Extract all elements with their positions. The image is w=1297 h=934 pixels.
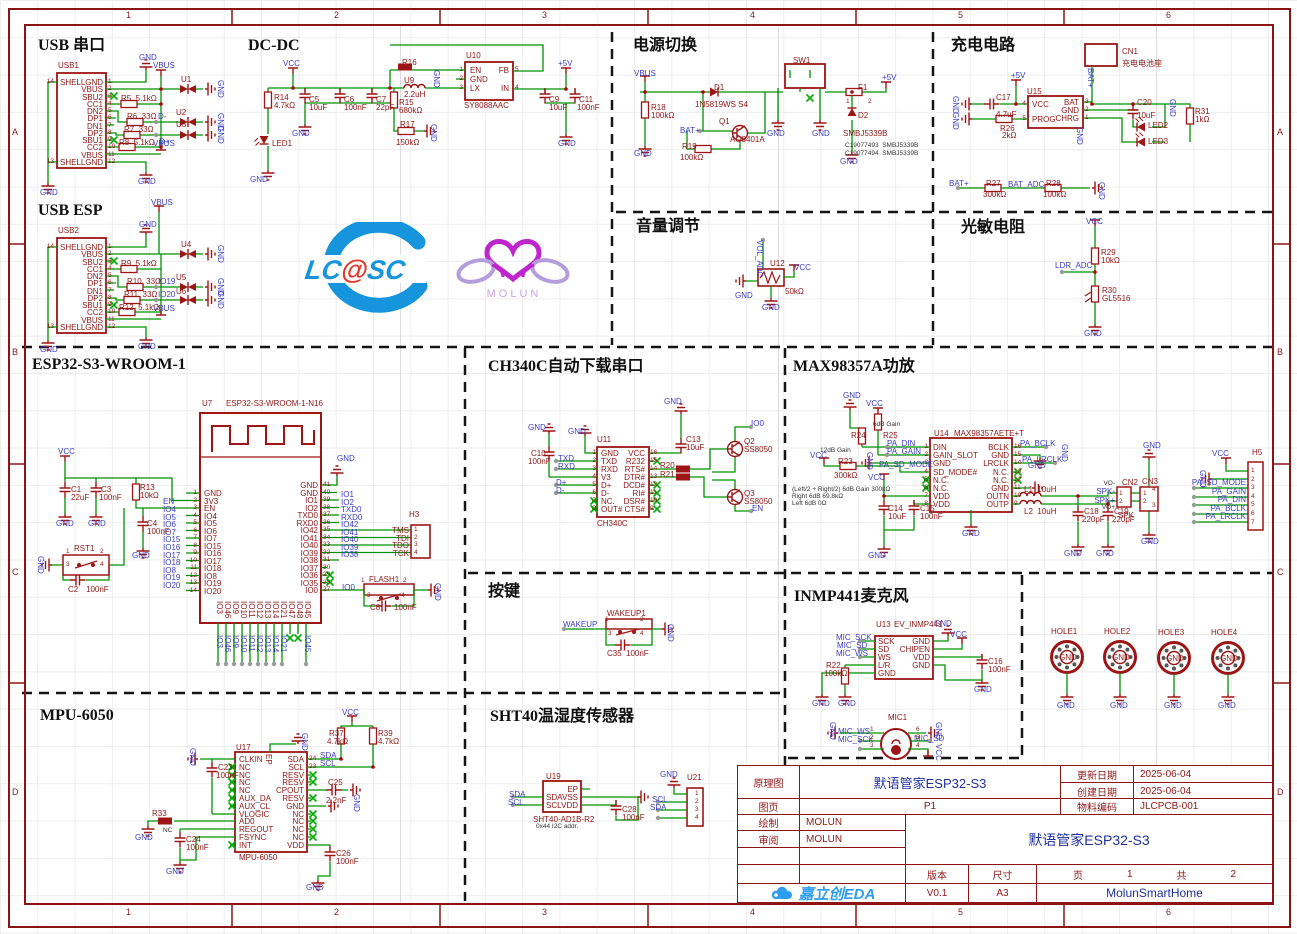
frame-label: 4: [750, 11, 755, 20]
net-label: IO20: [158, 291, 175, 299]
pin-number: 4: [1022, 101, 1026, 108]
pin-number: 33: [323, 542, 330, 549]
pin-number: 3: [459, 85, 463, 92]
pin-number: 6: [1251, 511, 1255, 518]
frame-label: 5: [958, 11, 963, 20]
component-label: 100nF: [216, 772, 239, 780]
net-label: BAT+: [1086, 68, 1094, 88]
section-title: DC-DC: [248, 38, 300, 54]
component-label: SHELL: [60, 159, 85, 167]
component-label: C17: [996, 94, 1011, 102]
cloud-icon: [768, 885, 794, 902]
pin-number: 1: [695, 791, 699, 798]
pin-number: 4: [100, 562, 104, 569]
component-label: GL5516: [1102, 295, 1130, 303]
component-label: 50kΩ: [785, 288, 804, 296]
net-label: VBUS: [153, 305, 175, 313]
net-label: GND: [337, 455, 355, 463]
section-title: MAX98357A功放: [793, 359, 915, 375]
component-label: H5: [1252, 449, 1262, 457]
section-title: 音量调节: [636, 219, 700, 235]
title-block-version-label: 版本: [905, 864, 969, 884]
net-label: GND: [666, 624, 674, 642]
component-label: 100nF: [336, 858, 359, 866]
component-label: MAX98357AETE+T: [954, 430, 1024, 438]
note-text: C19077493 SMBJ5339B: [845, 143, 918, 150]
section-title: CH340C自动下载串口: [488, 359, 644, 375]
net-label: GND: [166, 868, 184, 876]
frame-label: A: [12, 128, 18, 137]
component-label: L2 10uH: [1024, 508, 1056, 516]
component-label: INT: [239, 842, 252, 850]
component-label: GND: [85, 159, 103, 167]
title-block-project-title: 默语管家ESP32-S3: [905, 814, 1273, 865]
component-label: GND: [1220, 655, 1238, 663]
component-label: C20: [1137, 99, 1152, 107]
title-block-empty-cell: [799, 864, 906, 884]
pin-number: 3: [608, 631, 612, 638]
component-label: L1 10uH: [1024, 486, 1056, 494]
net-label: GND: [934, 722, 942, 740]
net-label: IO0: [342, 584, 355, 592]
pin-number: 5: [916, 735, 920, 742]
component-label: R7 33Ω: [124, 126, 154, 134]
net-label: GND: [250, 176, 268, 184]
title-block-page-row: 页1共2: [1036, 864, 1273, 884]
component-label: U6: [176, 288, 186, 296]
component-label: IO46: [223, 601, 231, 618]
pin-number: 13: [47, 324, 54, 331]
component-label: LED3: [1148, 138, 1168, 146]
section-title: USB ESP: [38, 203, 102, 219]
component-label: R20: [660, 462, 675, 470]
component-label: R16: [402, 59, 417, 67]
net-label: GND: [868, 552, 886, 560]
component-label: SY8088AAC: [464, 102, 509, 110]
pin-number: 1: [870, 727, 874, 734]
pin-number: 1: [66, 549, 70, 556]
net-label: GND: [138, 343, 156, 351]
section-title: 充电电路: [951, 38, 1015, 54]
component-label: OUT#: [601, 506, 622, 514]
component-label: 22pF: [376, 104, 394, 112]
pin-number: 6: [108, 115, 112, 122]
component-label: R24: [851, 432, 866, 440]
net-label: GND: [1143, 442, 1161, 450]
title-block-schematic-label: 原理图: [737, 765, 800, 799]
pin-number: 6: [592, 490, 596, 497]
component-label: 100nF: [147, 528, 170, 536]
net-label: GND: [1218, 702, 1236, 710]
component-label: 100nF: [988, 666, 1011, 674]
component-label: 220pF: [1082, 516, 1105, 524]
title-block-update-date: 2025-06-04: [1133, 765, 1273, 783]
component-label: D1: [714, 84, 724, 92]
component-label: MPU-6050: [239, 854, 277, 862]
pin-number: 1: [1143, 491, 1147, 498]
pin-number: 4: [1251, 494, 1255, 501]
net-label: GND: [762, 304, 780, 312]
net-label: IO14: [271, 635, 279, 652]
pin-number: 2: [459, 76, 463, 83]
component-label: 300kΩ: [834, 472, 857, 480]
frame-label: D: [1277, 788, 1284, 797]
component-label: GND: [878, 670, 896, 678]
pin-number: 24: [309, 756, 316, 763]
net-label: VBUS: [153, 140, 175, 148]
net-label: +5V: [1011, 72, 1025, 80]
component-label: R9 5.1kΩ: [121, 260, 157, 268]
net-label: GND: [1097, 182, 1105, 200]
component-label: 10uF: [888, 513, 906, 521]
pin-number: 10: [650, 498, 657, 505]
net-label: GND: [1110, 702, 1128, 710]
component-label: C8: [370, 604, 380, 612]
title-block-reviewed-by: MOLUN: [799, 830, 906, 848]
pin-number: 12: [108, 159, 115, 166]
net-label: GND: [828, 722, 836, 740]
component-label: U11: [597, 436, 611, 444]
component-label: SHELL: [60, 324, 85, 332]
net-label: GND: [306, 884, 324, 892]
net-label: GND: [934, 620, 952, 628]
frame-label: C: [12, 568, 19, 577]
title-block-size-label: 尺寸: [968, 864, 1037, 884]
net-label: IO0: [751, 420, 764, 428]
pin-number: 2: [868, 99, 872, 106]
frame-label: C: [1277, 568, 1284, 577]
net-label: PA_BCLK: [1020, 440, 1055, 448]
component-label: VDD: [287, 842, 304, 850]
component-label: U12: [770, 260, 785, 268]
frame-label: 4: [750, 908, 755, 917]
pin-number: 6: [916, 727, 920, 734]
pin-number: 31: [323, 557, 330, 564]
pin-number: 1: [459, 67, 463, 74]
net-label: GND: [812, 700, 830, 708]
net-label: IO13: [263, 635, 271, 652]
component-label: 1kΩ: [1195, 116, 1209, 124]
component-label: GND: [1112, 654, 1130, 662]
net-label: IO19: [158, 278, 175, 286]
title-block-drawn-by: MOLUN: [799, 814, 906, 831]
title-block-sheet-label: 图页: [737, 798, 800, 815]
component-label: 4.7kΩ: [274, 102, 295, 110]
net-label: GND: [1064, 550, 1082, 558]
pin-number: 2: [695, 799, 699, 806]
component-label: C2: [68, 586, 78, 594]
net-label: GND: [962, 530, 980, 538]
net-label: GND: [132, 552, 150, 560]
frame-label: B: [12, 348, 18, 357]
title-block-update-label: 更新日期: [1060, 765, 1134, 783]
pin-number: 2: [403, 578, 407, 585]
component-label: GND: [1059, 654, 1077, 662]
net-label: GND: [429, 124, 437, 142]
component-label: OUTP: [987, 501, 1009, 509]
component-label: R21: [660, 471, 675, 479]
component-label: EN: [470, 67, 481, 75]
component-label: 100kΩ: [824, 670, 847, 678]
component-label: GND: [85, 324, 103, 332]
net-label: GND: [56, 520, 74, 528]
component-label: IO3: [215, 601, 223, 614]
component-label: CTS#: [625, 506, 645, 514]
pin-number: 2: [924, 452, 928, 459]
net-label: GND: [568, 428, 586, 436]
pin-number: 23: [309, 764, 316, 771]
pin-number: 35: [323, 527, 330, 534]
net-label: GND: [840, 158, 858, 166]
component-label: U17: [236, 744, 251, 752]
jlc-eda-logo: 嘉立创EDA: [768, 883, 876, 904]
title-block-company: MolunSmartHome: [1036, 883, 1273, 903]
pin-number: 2: [1143, 499, 1147, 506]
net-label: GND: [1028, 462, 1046, 470]
component-label: IO9: [231, 601, 239, 614]
component-label: VDD: [933, 501, 950, 509]
pin-number: 12: [1014, 477, 1021, 484]
pin-number: 2: [1119, 499, 1123, 506]
title-block-version: V0.1: [905, 883, 969, 903]
net-label: GND: [352, 794, 360, 812]
component-label: FLASH1: [369, 576, 399, 584]
section-title: 按键: [488, 584, 520, 600]
net-label: GND: [292, 130, 310, 138]
component-label: 4.7kΩ: [327, 738, 348, 746]
component-label: HOLE2: [1104, 628, 1130, 636]
pin-number: 29: [323, 572, 330, 579]
pin-number: 4: [592, 474, 596, 481]
pin-number: 7: [1251, 520, 1255, 527]
component-label: SW1: [793, 57, 810, 65]
title-block-material-code: JLCPCB-001: [1133, 798, 1273, 815]
net-label: BAT_ADC: [1008, 181, 1044, 189]
component-label: USB2: [58, 227, 79, 235]
pin-number: 15: [1014, 452, 1021, 459]
net-label: GND: [812, 130, 830, 138]
pin-number: 14: [650, 466, 657, 473]
net-label: D-: [556, 487, 564, 495]
pin-number: 2: [108, 86, 112, 93]
frame-label: 1: [126, 11, 131, 20]
net-label: D-: [158, 113, 166, 121]
pin-number: 4: [924, 469, 928, 476]
pin-number: 3: [367, 593, 371, 600]
pin-number: 13: [1014, 469, 1021, 476]
component-label: 100nF: [344, 104, 367, 112]
component-label: 100nF: [186, 844, 209, 852]
pin-number: 4: [414, 550, 418, 557]
frame-label: D: [12, 788, 19, 797]
net-label: EN: [752, 505, 763, 513]
net-label: VCC: [1212, 450, 1229, 458]
component-label: R23: [838, 458, 853, 466]
pin-number: 41: [323, 482, 330, 489]
component-label: IO0: [305, 587, 318, 595]
pin-number: 5: [515, 67, 519, 74]
pin-number: 12: [108, 324, 115, 331]
section-title: USB 串口: [38, 38, 105, 54]
frame-label: 3: [542, 908, 547, 917]
pin-number: 2: [108, 251, 112, 258]
title-block-drawn-label: 绘制: [737, 814, 800, 831]
component-label: SS8050: [744, 446, 772, 454]
pin-number: 7: [924, 493, 928, 500]
pin-number: 14: [47, 79, 54, 86]
net-label: GND: [1075, 127, 1083, 145]
net-label: VCC: [950, 631, 967, 639]
section-title: ESP32-S3-WROOM-1: [32, 357, 186, 373]
pin-number: 1: [1119, 491, 1123, 498]
component-label: SMBJ5339B: [843, 130, 887, 138]
component-label: 10uF: [1137, 112, 1155, 120]
pin-number: 11: [650, 490, 657, 497]
component-label: FB: [499, 67, 509, 75]
component-label: 100nF: [528, 458, 551, 466]
pin-number: 4: [695, 815, 699, 822]
pin-number: 1: [361, 578, 365, 585]
component-label: CN1: [1122, 48, 1138, 56]
pin-number: 14: [47, 244, 54, 251]
net-label: GND: [139, 221, 157, 229]
net-label: SCL: [320, 760, 336, 768]
component-label: HOLE3: [1158, 629, 1184, 637]
pin-number: 27: [323, 587, 330, 594]
net-label: GND: [216, 291, 224, 309]
title-block-schematic-name: 默语管家ESP32-S3: [799, 765, 1061, 799]
title-block-review-label: 审阅: [737, 830, 800, 848]
net-label: GND: [1164, 702, 1182, 710]
component-label: 100nF: [577, 104, 600, 112]
title-block-empty-cell: [737, 847, 800, 865]
pin-number: 11: [1014, 485, 1021, 492]
pin-number: 1: [1085, 115, 1089, 122]
component-label: 100nF: [86, 586, 109, 594]
component-label: 10uF: [309, 104, 327, 112]
component-label: 4.7kΩ: [378, 738, 399, 746]
component-label: 100nF: [622, 814, 645, 822]
component-label: GND: [912, 662, 930, 670]
net-label: GND: [660, 771, 678, 779]
component-label: U3: [176, 121, 186, 129]
component-label: 100nF: [394, 604, 417, 612]
net-label: VCC: [283, 60, 300, 68]
pin-number: 4: [640, 631, 644, 638]
note-text: VO+: [1102, 505, 1115, 512]
net-label: VCC: [794, 264, 811, 272]
section-title: 光敏电阻: [961, 220, 1025, 236]
pin-number: 4: [916, 743, 920, 750]
net-label: VCC: [810, 452, 827, 460]
component-label: VCC: [1032, 101, 1049, 109]
net-label: IO9: [231, 635, 239, 648]
net-label: GND: [528, 424, 546, 432]
net-label: GND: [216, 245, 224, 263]
net-label: SCL: [508, 799, 524, 807]
net-label: GND: [188, 748, 196, 766]
component-label: 300kΩ: [983, 191, 1006, 199]
component-label: R8 5.1kΩ: [119, 139, 155, 147]
pin-number: 9: [650, 506, 654, 513]
component-label: R33: [152, 810, 167, 818]
pin-number: 3: [870, 743, 874, 750]
pin-number: 10: [108, 144, 115, 151]
pin-number: 8: [592, 506, 596, 513]
net-label: GND: [40, 189, 58, 197]
component-label: U9: [404, 77, 414, 85]
frame-label: B: [1277, 348, 1283, 357]
pin-number: 5: [1251, 502, 1255, 509]
net-label: IO21: [279, 635, 287, 652]
pin-number: 2: [100, 549, 104, 556]
component-label: 100kΩ: [680, 154, 703, 162]
frame-label: 3: [542, 11, 547, 20]
pin-number: 4: [401, 593, 405, 600]
pin-number: 37: [323, 512, 330, 519]
net-label: GND: [951, 112, 959, 130]
component-label: R10 33Ω: [127, 278, 161, 286]
net-label: IO12: [255, 635, 263, 652]
note-text: Left 6dB 0Ω: [792, 501, 827, 508]
component-label: 4.7uF: [996, 111, 1016, 119]
net-label: GND: [1168, 99, 1176, 117]
pin-number: 3: [1085, 99, 1089, 106]
pin-number: 3: [592, 466, 596, 473]
title-block-eda-logo-cell: 嘉立创EDA: [737, 883, 906, 903]
component-label: CHRG: [1055, 115, 1079, 123]
component-label: IO47: [287, 601, 295, 618]
net-label: IO38: [341, 551, 358, 559]
component-label: 10uF: [686, 444, 704, 452]
net-label: IO10: [239, 635, 247, 652]
component-label: LED2: [1148, 122, 1168, 130]
pin-number: 13: [47, 159, 54, 166]
title-block-sheet: P1: [799, 798, 1061, 815]
net-label: GND: [767, 130, 785, 138]
component-label: IO12: [255, 601, 263, 618]
pin-number: 2: [870, 735, 874, 742]
net-label: SDA: [650, 804, 666, 812]
net-label: BAT+: [680, 127, 700, 135]
net-label: PA_SD_MODE: [879, 461, 933, 469]
net-label: WAKEUP: [563, 621, 597, 629]
component-label: U15: [1027, 88, 1042, 96]
net-label: IO20: [163, 582, 180, 590]
pin-number: 5: [1022, 116, 1026, 123]
net-label: IO11: [247, 635, 255, 652]
net-label: VCC: [58, 448, 75, 456]
net-label: MIC_SCK: [838, 736, 874, 744]
component-label: 22uF: [71, 494, 89, 502]
component-label: IN: [501, 85, 509, 93]
frame-label: 2: [334, 11, 339, 20]
component-label: SPK: [1118, 512, 1134, 520]
component-label: R19: [682, 143, 697, 151]
component-label: CN2: [1122, 479, 1138, 487]
pin-number: 10: [1014, 493, 1021, 500]
component-label: H3: [409, 511, 419, 519]
component-label: Q1: [719, 118, 730, 126]
component-label: 100kΩ: [651, 112, 674, 120]
pin-number: 3: [414, 542, 418, 549]
pin-number: 3: [1251, 485, 1255, 492]
net-label: +5V: [882, 74, 896, 82]
component-label: EP: [264, 754, 272, 765]
pin-number: 5: [592, 482, 596, 489]
net-label: GND: [40, 346, 58, 354]
component-label: U14: [934, 430, 949, 438]
